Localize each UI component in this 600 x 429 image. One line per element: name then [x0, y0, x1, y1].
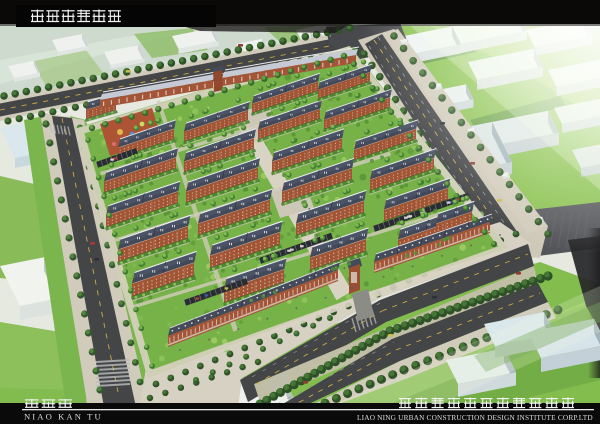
svg-text:LIAO NING URBAN CONSTRUCTION D: LIAO NING URBAN CONSTRUCTION DESIGN INST…: [357, 413, 593, 422]
svg-text:NIAO KAN TU: NIAO KAN TU: [24, 412, 103, 422]
